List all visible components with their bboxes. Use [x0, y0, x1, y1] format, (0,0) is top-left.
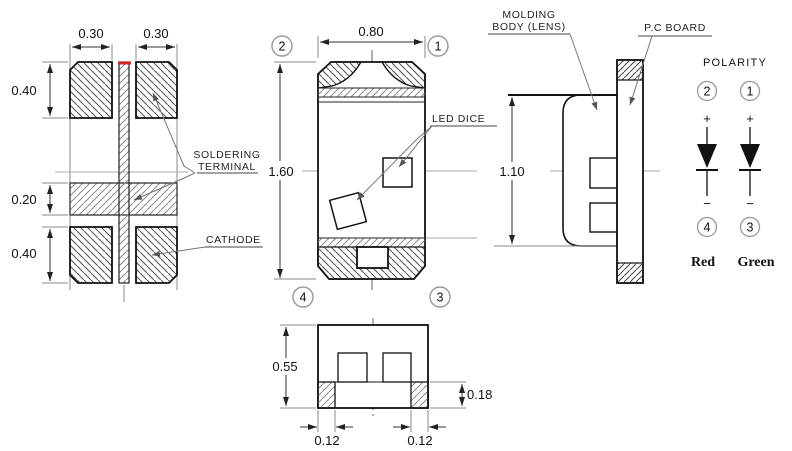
color-name-red: Red	[691, 255, 715, 270]
dim-gap-height: 0.20	[11, 192, 36, 207]
dim-package-width: 0.80	[358, 24, 383, 39]
polarity-title: POLARITY	[703, 57, 767, 69]
terminal-block-left	[338, 353, 367, 382]
plus-sign: +	[703, 111, 711, 126]
molding-body-label-line2: BODY (LENS)	[492, 21, 566, 33]
pin-number: 4	[300, 291, 307, 305]
minus-sign: −	[703, 196, 711, 211]
terminal-upper	[590, 158, 617, 188]
dim-overall-height: 0.55	[272, 359, 297, 374]
diode-icon	[696, 127, 718, 196]
led-die-red	[330, 193, 367, 230]
top-view: 0.80 1.60 LED DICE 2 1	[260, 24, 497, 307]
soldering-terminal-label-line1: SOLDERING	[193, 149, 260, 161]
pc-board	[617, 60, 643, 283]
pin-1-badge: 1	[428, 36, 448, 56]
dim-terminal-width-right: 0.12	[407, 433, 432, 448]
solder-pad-top-left	[70, 62, 112, 118]
bottom-view: 0.55 0.18 0.12 0.12	[266, 318, 492, 448]
pc-board-label: P.C BOARD	[644, 22, 706, 34]
minus-sign: −	[746, 196, 754, 211]
diode-icon	[739, 127, 761, 196]
terminal-lower	[590, 203, 617, 232]
center-cross-vertical	[119, 62, 129, 283]
dim-pad-height-bottom: 0.40	[11, 246, 36, 261]
solder-pad-top-right	[136, 62, 177, 118]
cathode-notch	[357, 247, 388, 268]
footprint-view: 0.30 0.30 0.40 0.20 0.40 SOLDERING TERMI…	[11, 26, 263, 302]
bottom-terminal-band	[318, 238, 425, 247]
top-terminal-band	[318, 88, 425, 97]
dim-package-height: 1.60	[268, 164, 293, 179]
dim-terminal-width-left: 0.12	[314, 433, 339, 448]
terminal-foot-right	[411, 382, 428, 408]
pin-3-badge: 3	[430, 287, 450, 307]
pin-4-badge: 4	[293, 287, 313, 307]
dim-body-height: 1.10	[499, 164, 524, 179]
side-view: 1.10 MOLDING BODY (LENS) P.C BOARD	[488, 9, 712, 283]
soldering-terminal-label-line2: TERMINAL	[198, 161, 256, 173]
led-dice-label: LED DICE	[432, 113, 485, 125]
molding-body-label-line1: MOLDING	[502, 9, 555, 21]
pin-number: 1	[747, 85, 754, 99]
pin-number: 2	[279, 40, 286, 54]
solder-pad-bottom-right	[136, 227, 177, 283]
led-package-drawing: 0.30 0.30 0.40 0.20 0.40 SOLDERING TERMI…	[0, 0, 792, 451]
pin-2-badge: 2	[272, 36, 292, 56]
polarity-left-column: 2 + − 4 Red	[691, 82, 718, 271]
dim-pad-width-left: 0.30	[78, 26, 103, 41]
pin-number: 3	[747, 221, 754, 235]
cathode-label: CATHODE	[206, 234, 261, 246]
pin-number: 3	[437, 291, 444, 305]
pin-number: 4	[704, 221, 711, 235]
polarity-right-column: 1 + − 3 Green	[737, 82, 774, 271]
led-die-green	[383, 158, 412, 187]
dim-terminal-height: 0.18	[467, 387, 492, 402]
terminal-foot-left	[318, 382, 335, 408]
polarity-diagram: POLARITY 2 + − 4 Red 1 +	[691, 57, 775, 270]
pin-number: 2	[704, 85, 711, 99]
color-name-green: Green	[737, 255, 774, 270]
solder-pad-bottom-left	[70, 227, 112, 283]
terminal-block-right	[383, 353, 411, 382]
dim-pad-width-right: 0.30	[143, 26, 168, 41]
dim-pad-height-top: 0.40	[11, 83, 36, 98]
drawing-canvas: 0.30 0.30 0.40 0.20 0.40 SOLDERING TERMI…	[0, 0, 792, 451]
pin-number: 1	[435, 40, 442, 54]
plus-sign: +	[746, 111, 754, 126]
pc-board-section-bottom	[617, 263, 643, 283]
